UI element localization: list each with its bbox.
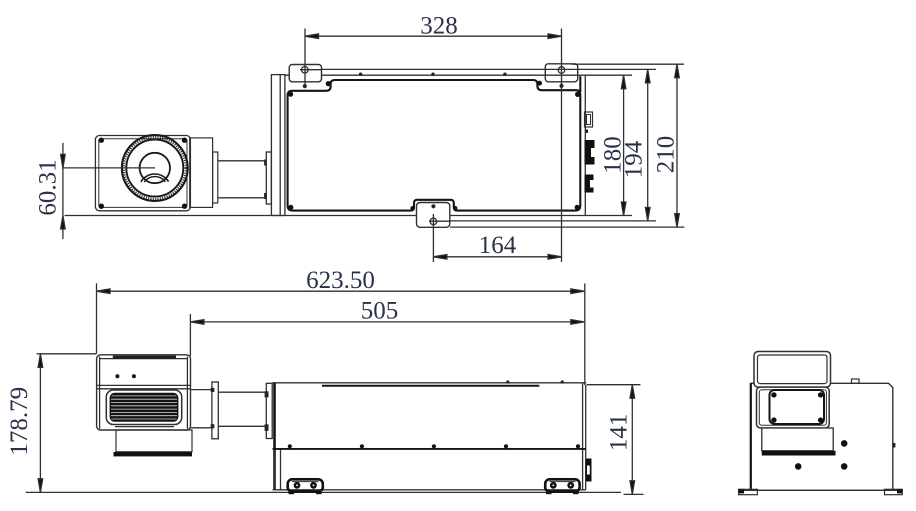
svg-text:60.31: 60.31 — [35, 159, 62, 215]
svg-text:194: 194 — [621, 140, 648, 178]
svg-text:505: 505 — [361, 298, 399, 325]
svg-text:164: 164 — [479, 232, 517, 259]
svg-text:178.79: 178.79 — [6, 387, 33, 456]
svg-text:328: 328 — [420, 12, 458, 39]
svg-text:210: 210 — [653, 136, 680, 174]
svg-text:623.50: 623.50 — [306, 267, 375, 294]
svg-text:141: 141 — [606, 414, 633, 452]
